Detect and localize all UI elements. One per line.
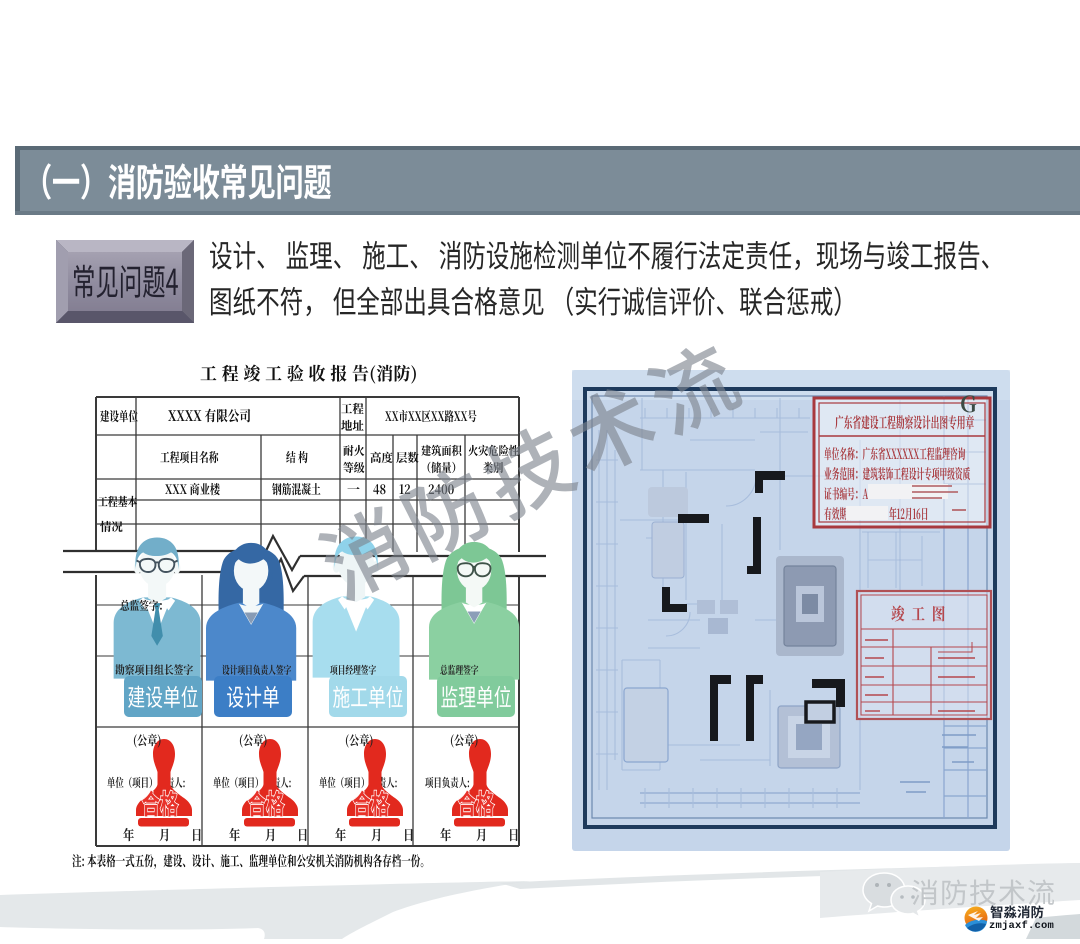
svg-text:zmjaxf.com: zmjaxf.com (989, 920, 1054, 932)
